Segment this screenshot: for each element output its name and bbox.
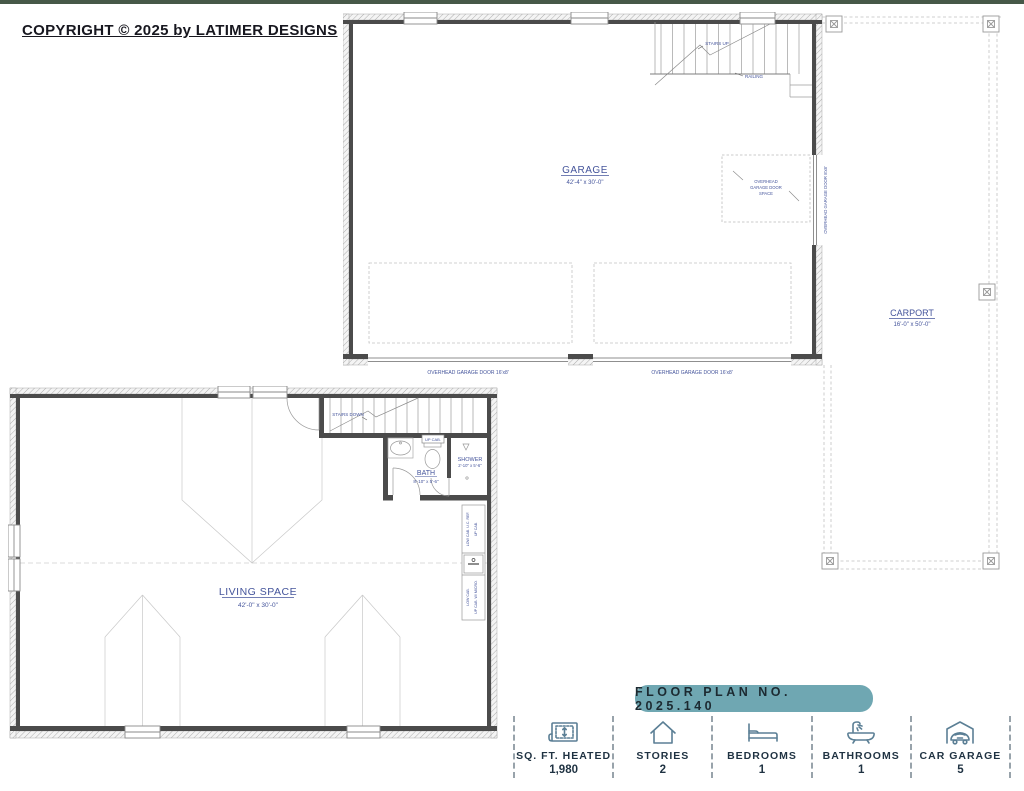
garage-room-label: GARAGE	[562, 165, 608, 176]
railing-label: RAILING	[745, 74, 764, 79]
stair-entry-door	[287, 398, 319, 430]
living-space-dims: 42'-0" x 30'-0"	[238, 602, 279, 609]
stair-bottom-wall	[319, 433, 487, 438]
stat-bathrooms: BATHROOMS 1	[811, 716, 910, 778]
stairwell-wall	[319, 398, 324, 433]
cab-bottom-label-b: UP CAB. W/ MICRO.	[474, 580, 478, 614]
stat-stories: STORIES 2	[612, 716, 711, 778]
shower-dims: 2'-10" x 5'-6"	[458, 463, 482, 468]
copyright-text: COPYRIGHT © 2025 by LATIMER DESIGNS	[22, 22, 338, 39]
carport-dims: 16'-0" x 50'-0"	[894, 322, 931, 328]
stat-value: 1	[759, 764, 765, 776]
carport-label: CARPORT	[890, 308, 934, 318]
stairs-up	[650, 22, 812, 97]
bed-icon	[745, 718, 779, 748]
second-floor-plan: STAIRS DOWN UP CAB. BATH 8'-10" x 5'-6" …	[8, 386, 504, 742]
blueprint-icon	[547, 718, 581, 748]
house-icon	[648, 718, 678, 748]
floor-plan-banner: FLOOR PLAN NO. 2025.140	[635, 685, 873, 712]
living-windows	[8, 386, 380, 738]
overhead-door-space-label-1: OVERHEAD	[754, 179, 778, 184]
stat-car-garage: CAR GARAGE 5	[910, 716, 1009, 778]
cab-top-label-a: LOW CAB. U.C. REF.	[466, 512, 470, 547]
stairs-down-label: STAIRS DOWN	[332, 412, 363, 417]
stat-sqft: SQ. FT. HEATED 1,980	[513, 716, 612, 778]
stat-label: STORIES	[636, 750, 689, 762]
garage-door-right-label: OVERHEAD GARAGE DOOR 16'x8'	[651, 370, 732, 376]
living-space-label: LIVING SPACE	[219, 586, 297, 598]
plan-stats-row: SQ. FT. HEATED 1,980 STORIES 2 BEDROOMS …	[513, 716, 1011, 778]
bathtub-icon	[844, 718, 878, 748]
carport-posts	[822, 16, 999, 569]
stat-value: 1,980	[549, 764, 578, 776]
stat-bedrooms: BEDROOMS 1	[711, 716, 810, 778]
stat-label: SQ. FT. HEATED	[516, 750, 611, 762]
cab-bottom-label-a: LOW CAB.	[466, 588, 470, 606]
garage-room-dims: 42'-4" x 30'-0"	[567, 180, 604, 186]
stat-value: 1	[858, 764, 864, 776]
garage-side-door-label: OVERHEAD GARAGE DOOR 8'x8'	[823, 166, 828, 234]
stat-label: BEDROOMS	[727, 750, 797, 762]
stat-value: 5	[957, 764, 963, 776]
car-garage-icon	[943, 718, 977, 748]
floor-plan-number: FLOOR PLAN NO. 2025.140	[635, 685, 873, 713]
garage-side-door	[810, 155, 824, 245]
overhead-door-space-label-2: GARAGE DOOR	[750, 185, 782, 190]
bath-label: BATH	[417, 470, 435, 477]
stat-label: BATHROOMS	[823, 750, 900, 762]
carport-structure	[822, 17, 1001, 569]
stat-label: CAR GARAGE	[920, 750, 1002, 762]
stairs-up-label: STAIRS UP	[705, 41, 728, 46]
cab-top-label-b: UP CAB.	[474, 522, 478, 536]
overhead-door-space-label-3: SPACE	[759, 191, 773, 196]
bath-dims: 8'-10" x 5'-6"	[413, 479, 439, 484]
garage-door-left-label: OVERHEAD GARAGE DOOR 16'x8'	[427, 370, 508, 376]
top-accent-bar	[0, 0, 1024, 4]
up-cab-label: UP CAB.	[425, 437, 441, 442]
parking-bays	[369, 263, 791, 343]
stat-value: 2	[660, 764, 666, 776]
